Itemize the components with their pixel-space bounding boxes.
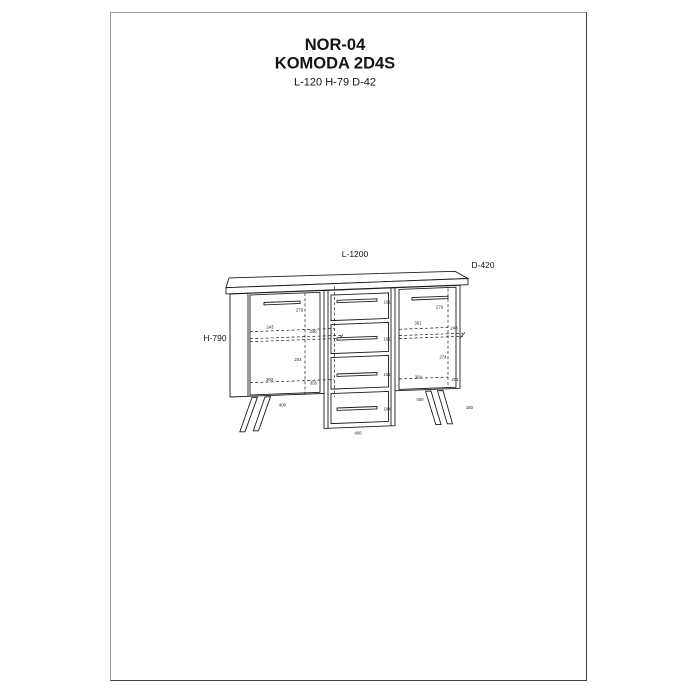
ann-drawer-3: 161 (384, 372, 392, 377)
depth-dimension-label: D-420 (471, 260, 494, 270)
product-dimensions: L-120 H-79 D-42 (294, 77, 376, 89)
height-dimension-label: H-790 (203, 333, 226, 343)
ann-right-shelf: 361 (414, 321, 422, 326)
ann-right-handle: 279 (436, 305, 444, 310)
ann-drawer-1: 161 (384, 300, 392, 305)
cabinet-drawing: L-1200 D-420 H-790 279 243 340 254 393 3… (203, 249, 494, 436)
ann-left-bottom: 393 (266, 377, 274, 382)
right-door (399, 287, 456, 389)
ann-left-mid: 254 (294, 357, 302, 362)
leg-front-right (438, 391, 453, 424)
ann-leg-height: 180 (466, 405, 474, 410)
ann-right-bottom: 364 (415, 375, 423, 380)
page: { "header": { "code": "NOR-04", "name": … (0, 0, 700, 700)
length-dimension-label: L-1200 (342, 249, 369, 259)
ann-left-handle: 279 (296, 308, 304, 313)
drawer-1-front (331, 293, 389, 321)
ann-right-shelf-end: 248 (450, 326, 458, 331)
ann-right-base: 400 (416, 397, 424, 402)
ann-left-shelf: 243 (266, 325, 274, 330)
drawer-3-front (331, 355, 389, 389)
title-block: NOR-04 KOMODA 2D4S L-120 H-79 D-42 (275, 36, 395, 89)
ann-left-bottom-end: 355 (310, 381, 318, 386)
technical-drawing-svg: NOR-04 KOMODA 2D4S L-120 H-79 D-42 (0, 0, 700, 700)
ann-base-center: 400 (354, 431, 362, 436)
ann-drawer-2: 161 (384, 337, 392, 342)
product-code: NOR-04 (305, 36, 366, 54)
ann-left-base: 400 (279, 403, 287, 408)
ann-right-bottom-end: 201 (451, 377, 459, 382)
product-name: KOMODA 2D4S (275, 55, 395, 73)
ann-drawer-4: 184 (384, 407, 392, 412)
ann-left-shelf-end: 340 (309, 329, 317, 334)
ann-right-mid: 274 (439, 355, 447, 360)
